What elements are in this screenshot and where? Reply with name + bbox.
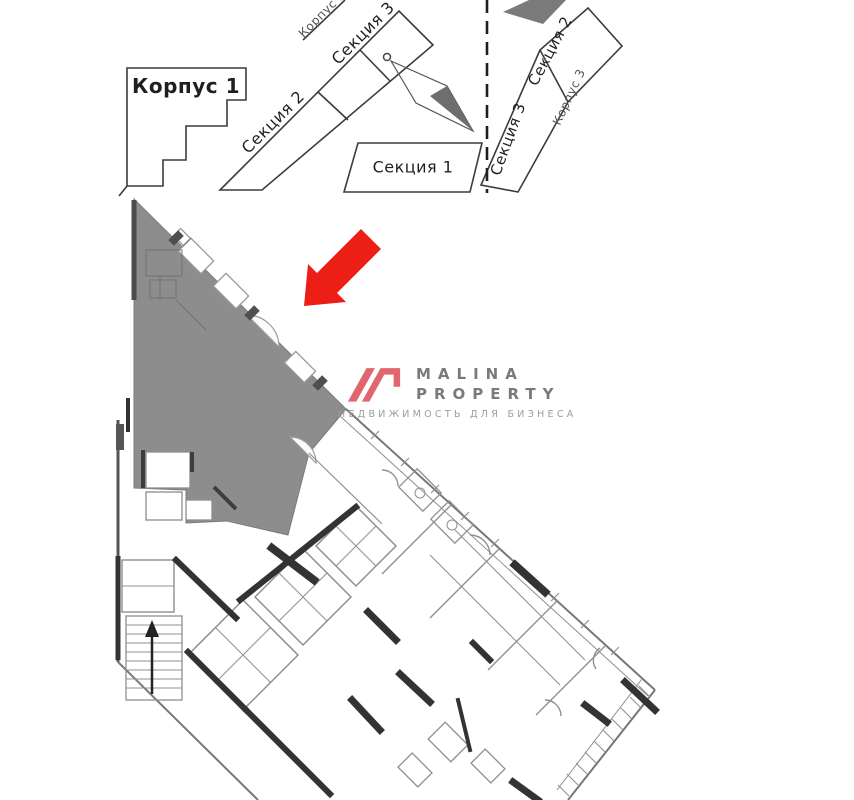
- brand-name-line2: PROPERTY: [416, 384, 561, 404]
- staircase-symbol: [126, 616, 182, 700]
- north-arrow-icon: [384, 54, 474, 132]
- floorplan-image: Корпус 1 Секция 2 Секция 3 Корпус 2 Секц…: [0, 0, 854, 800]
- watermark-logo: MALINA PROPERTY НЕДВИЖИМОСТЬ ДЛЯ БИЗНЕСА: [338, 362, 548, 420]
- malina-logo-icon: [346, 362, 402, 404]
- label-korpus-1: Корпус 1: [132, 74, 240, 98]
- brand-tagline: НЕДВИЖИМОСТЬ ДЛЯ БИЗНЕСА: [338, 409, 548, 420]
- brand-name-line1: MALINA: [416, 364, 561, 384]
- highlighted-unit: [134, 199, 346, 535]
- label-section-1: Секция 1: [373, 158, 454, 177]
- red-arrow-icon: [304, 229, 381, 306]
